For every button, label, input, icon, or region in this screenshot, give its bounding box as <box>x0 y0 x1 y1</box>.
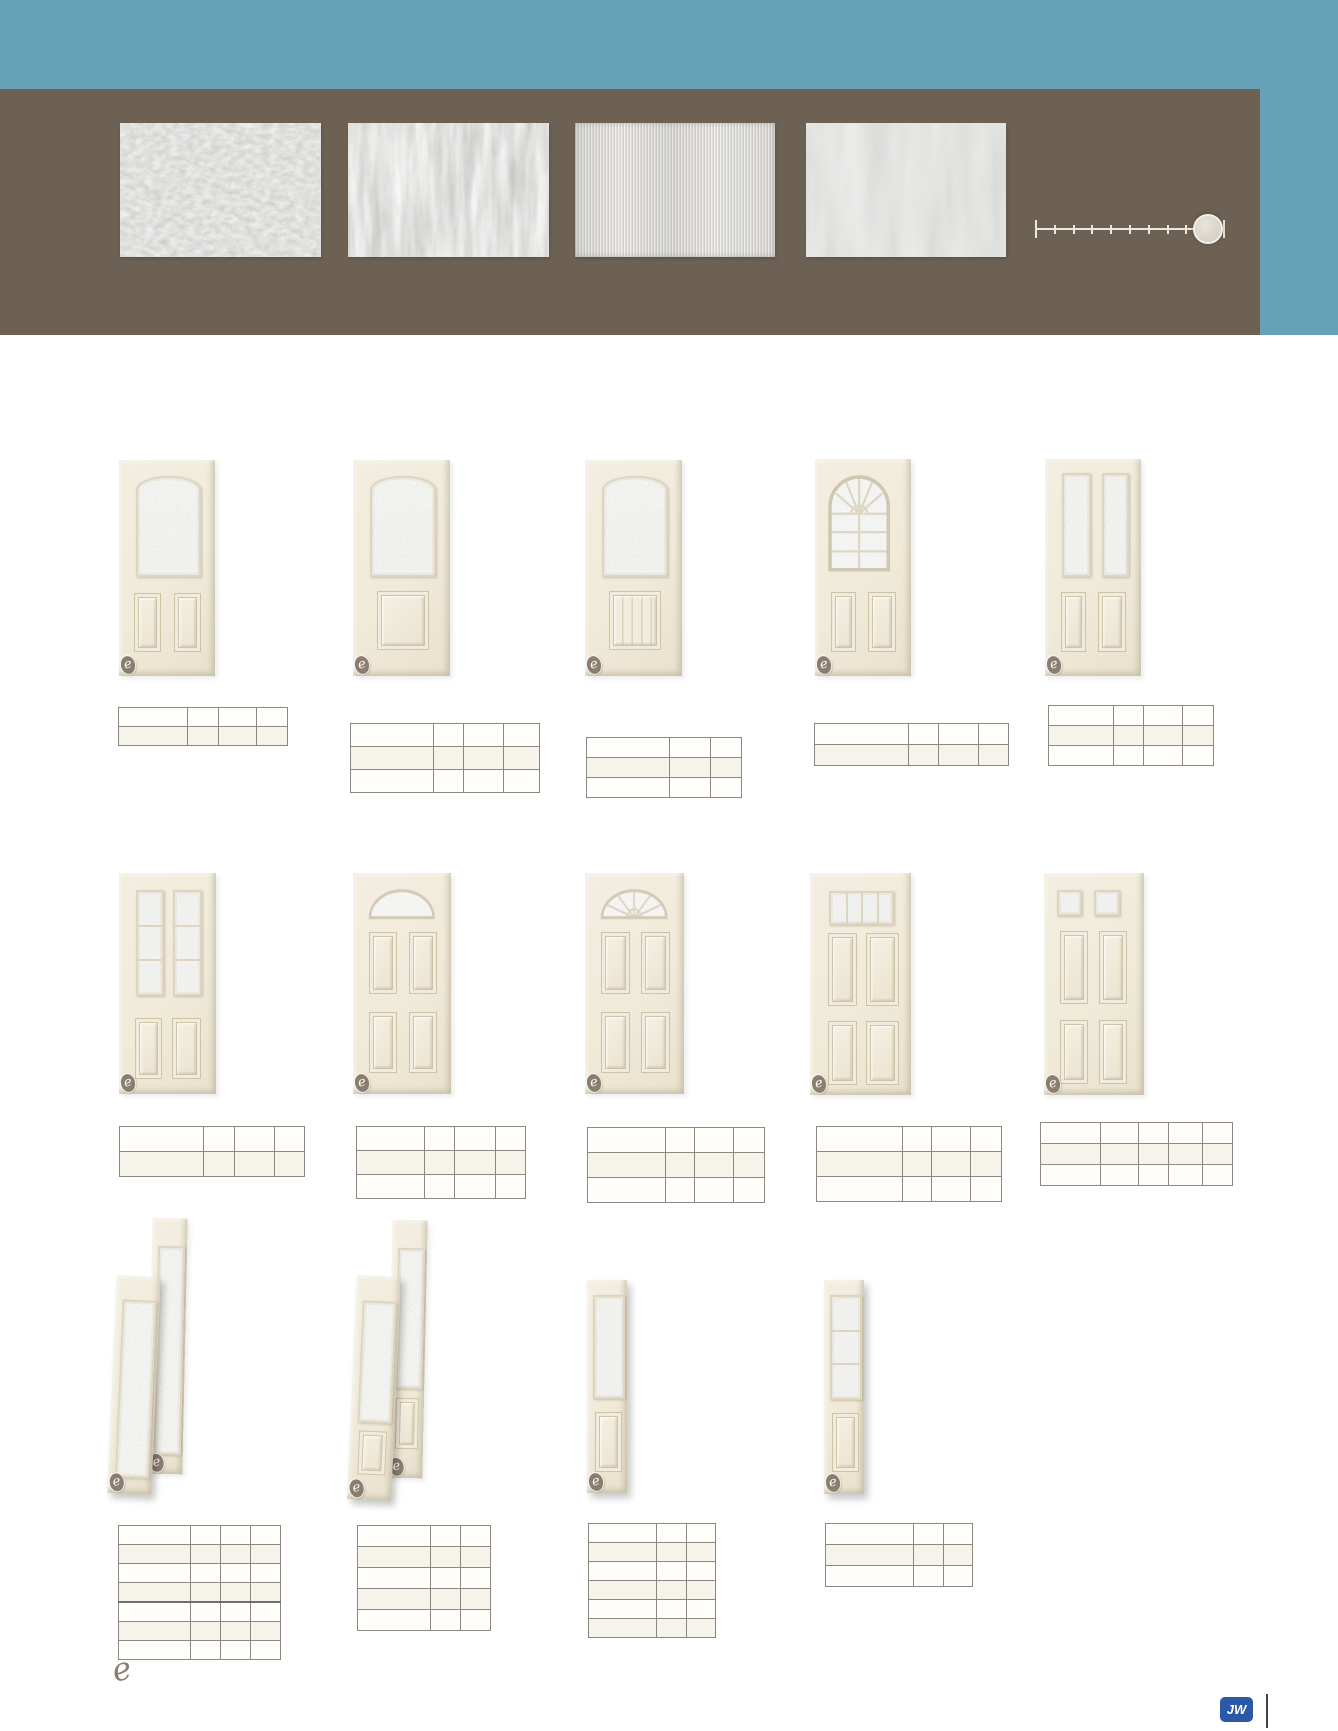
spec-cell <box>431 1526 461 1547</box>
spec-cell <box>464 747 504 770</box>
energy-e-badge: e <box>585 1073 602 1094</box>
scale-tick <box>1129 225 1131 234</box>
spec-cell <box>971 1152 1002 1177</box>
door-panel <box>641 932 670 995</box>
spec-cell <box>903 1127 932 1152</box>
door-panel <box>409 1012 437 1074</box>
door-glass <box>829 891 894 925</box>
spec-table <box>1040 1122 1233 1186</box>
door-glass <box>115 1299 157 1479</box>
glass-muntin <box>175 925 199 927</box>
door-half-lite-1panel: e <box>353 460 450 676</box>
jw-brand-logo: JW <box>1220 1697 1253 1722</box>
energy-e-badge: e <box>353 1073 370 1094</box>
footer-divider <box>1266 1694 1268 1728</box>
spec-cell <box>1203 1165 1233 1186</box>
spec-cell <box>1169 1123 1203 1144</box>
spec-cell <box>221 1583 251 1603</box>
spec-cell <box>589 1619 657 1638</box>
spec-cell <box>275 1127 305 1152</box>
spec-cell <box>687 1543 716 1562</box>
energy-e-badge: e <box>587 1472 604 1493</box>
spec-cell <box>235 1152 275 1177</box>
spec-table <box>588 1523 716 1638</box>
spec-table <box>118 707 288 746</box>
glass-muntin <box>861 893 863 923</box>
door-glass <box>358 1300 397 1424</box>
door-twin-square-4panel: e <box>1044 873 1144 1095</box>
spec-cell <box>434 724 464 747</box>
door-fan-4panel: e <box>353 873 451 1094</box>
spec-cell <box>461 1568 491 1589</box>
spec-cell <box>275 1152 305 1177</box>
door-glass <box>173 890 201 997</box>
energy-e-badge: e <box>810 1074 827 1095</box>
spec-cell <box>657 1619 687 1638</box>
spec-cell <box>504 770 540 793</box>
spec-cell <box>944 1566 973 1587</box>
spec-cell <box>1041 1165 1101 1186</box>
spec-cell <box>687 1524 716 1543</box>
spec-cell <box>434 770 464 793</box>
spec-cell <box>191 1602 221 1622</box>
door-glass <box>602 476 667 577</box>
spec-cell <box>1041 1144 1101 1165</box>
door-panel <box>377 591 429 650</box>
door-panel <box>1098 592 1127 652</box>
spec-cell <box>944 1545 973 1566</box>
fan-window <box>367 887 437 920</box>
door-panel <box>174 593 201 652</box>
spec-cell <box>932 1152 971 1177</box>
door-glass <box>136 476 200 577</box>
spec-cell <box>1041 1123 1101 1144</box>
door-arch-grille-2panel: e <box>815 459 911 676</box>
spec-cell <box>914 1566 944 1587</box>
spec-cell <box>826 1566 914 1587</box>
spec-cell <box>971 1127 1002 1152</box>
spec-cell <box>826 1524 914 1545</box>
glass-muntin <box>832 1363 860 1365</box>
spec-cell <box>589 1543 657 1562</box>
door-panel <box>369 932 397 995</box>
glass-muntin <box>138 925 161 927</box>
spec-cell <box>589 1581 657 1600</box>
spec-cell <box>1139 1144 1169 1165</box>
spec-cell <box>496 1175 526 1199</box>
scale-tick <box>1223 220 1225 238</box>
spec-cell <box>1183 746 1214 766</box>
spec-cell <box>817 1152 903 1177</box>
spec-table <box>356 1126 526 1199</box>
spec-cell <box>1139 1123 1169 1144</box>
spec-table <box>814 723 1009 766</box>
spec-cell <box>119 727 188 746</box>
spec-cell <box>1139 1165 1169 1186</box>
spec-cell <box>357 1151 425 1175</box>
energy-e-badge: e <box>824 1473 841 1494</box>
spec-cell <box>587 738 670 758</box>
spec-cell <box>657 1524 687 1543</box>
crinkle-glass-swatch <box>120 123 321 257</box>
spec-cell <box>119 1602 191 1622</box>
spec-cell <box>204 1152 235 1177</box>
spec-cell <box>251 1583 281 1603</box>
spec-cell <box>1203 1144 1233 1165</box>
spec-cell <box>1114 726 1144 746</box>
door-glass <box>395 1248 426 1389</box>
spec-cell <box>666 1128 695 1153</box>
door-glass <box>593 1295 625 1399</box>
spec-cell <box>461 1610 491 1631</box>
door-glass <box>136 890 163 997</box>
sunburst-fan-window <box>599 887 669 920</box>
spec-cell <box>119 1526 191 1545</box>
spec-cell <box>119 1583 191 1603</box>
scale-tick <box>1054 225 1056 234</box>
spec-cell <box>687 1581 716 1600</box>
spec-cell <box>815 724 909 745</box>
spec-cell <box>461 1526 491 1547</box>
privacy-scale <box>1036 213 1224 245</box>
door-panel <box>866 933 899 1006</box>
energy-e-badge: e <box>353 655 370 676</box>
spec-cell <box>191 1641 221 1660</box>
spec-cell <box>119 1641 191 1660</box>
door-glass <box>1102 473 1129 577</box>
spec-cell <box>496 1151 526 1175</box>
door-glass <box>1062 473 1091 577</box>
spec-cell <box>1101 1165 1139 1186</box>
door-panel <box>831 592 857 652</box>
glass-muntin <box>175 959 199 961</box>
spec-cell <box>666 1178 695 1203</box>
spec-cell <box>358 1526 431 1547</box>
spec-cell <box>734 1153 765 1178</box>
door-panel <box>832 1413 860 1473</box>
spec-cell <box>257 708 288 727</box>
sidelite-half-lite-panel: e <box>587 1280 627 1493</box>
spec-table <box>825 1523 973 1587</box>
door-half-lite-2panel: e <box>119 460 215 676</box>
spec-cell <box>351 770 434 793</box>
spec-cell <box>817 1127 903 1152</box>
spec-cell <box>734 1178 765 1203</box>
energy-e-badge: e <box>348 1478 365 1498</box>
energy-e-badge: e <box>1045 655 1062 676</box>
spec-cell <box>711 758 742 778</box>
spec-table <box>357 1525 491 1631</box>
spec-cell <box>944 1524 973 1545</box>
spec-cell <box>351 724 434 747</box>
spec-cell <box>461 1589 491 1610</box>
door-panel <box>1061 592 1087 652</box>
spec-cell <box>1114 706 1144 726</box>
spec-cell <box>431 1568 461 1589</box>
energy-e-badge: e <box>119 655 136 676</box>
spec-table <box>816 1126 1002 1202</box>
spec-cell <box>939 745 979 766</box>
spec-cell <box>657 1562 687 1581</box>
sidelite-lite-3seg-panel: e <box>824 1280 864 1494</box>
spec-cell <box>357 1175 425 1199</box>
spec-cell <box>657 1581 687 1600</box>
spec-cell <box>1203 1123 1233 1144</box>
spec-cell <box>711 778 742 798</box>
spec-cell <box>251 1526 281 1545</box>
door-glass <box>1057 890 1082 916</box>
spec-cell <box>431 1610 461 1631</box>
spec-cell <box>932 1177 971 1202</box>
spec-cell <box>588 1128 666 1153</box>
spec-cell <box>979 724 1009 745</box>
door-panel <box>641 1012 670 1074</box>
spec-cell <box>191 1622 221 1641</box>
spec-cell <box>666 1153 695 1178</box>
spec-cell <box>191 1545 221 1564</box>
door-panel <box>866 1021 899 1085</box>
spec-cell <box>357 1127 425 1151</box>
spec-cell <box>670 738 711 758</box>
spec-cell <box>670 778 711 798</box>
spec-cell <box>657 1600 687 1619</box>
door-panel <box>1099 931 1127 1004</box>
spec-cell <box>589 1524 657 1543</box>
spec-cell <box>120 1127 204 1152</box>
catalog-page: eee eee e eeeeeeeee <box>0 0 1338 1731</box>
spec-cell <box>235 1127 275 1152</box>
spec-cell <box>695 1153 734 1178</box>
spec-cell <box>358 1547 431 1568</box>
spec-table <box>118 1525 281 1660</box>
spec-cell <box>431 1547 461 1568</box>
spec-cell <box>257 727 288 746</box>
spec-cell <box>914 1524 944 1545</box>
spec-cell <box>1049 726 1114 746</box>
door-strip-lite-4panel: e <box>810 873 911 1095</box>
door-glass <box>830 1295 862 1400</box>
spec-cell <box>1169 1165 1203 1186</box>
spec-cell <box>1144 726 1183 746</box>
door-panel <box>601 1012 630 1074</box>
spec-table <box>1048 705 1214 766</box>
spec-table <box>586 737 742 798</box>
spec-cell <box>434 747 464 770</box>
spec-cell <box>914 1545 944 1566</box>
spec-cell <box>358 1589 431 1610</box>
spec-cell <box>221 1622 251 1641</box>
spec-cell <box>496 1127 526 1151</box>
door-panel <box>1099 1020 1127 1084</box>
glass-muntin <box>877 893 879 923</box>
spec-cell <box>979 745 1009 766</box>
wave-glass-swatch <box>806 123 1006 257</box>
spec-cell <box>815 745 909 766</box>
reed-glass-swatch <box>575 123 775 257</box>
spec-cell <box>464 724 504 747</box>
spec-cell <box>119 1545 191 1564</box>
spec-cell <box>120 1152 204 1177</box>
door-panel <box>395 1398 419 1449</box>
spec-cell <box>251 1545 281 1564</box>
door-fan-sunburst-4panel: e <box>585 873 684 1094</box>
spec-cell <box>826 1545 914 1566</box>
door-half-lite-plank: e <box>585 460 682 676</box>
spec-table <box>119 1126 305 1177</box>
spec-table <box>587 1127 765 1203</box>
spec-cell <box>188 727 219 746</box>
spec-cell <box>358 1568 431 1589</box>
spec-table <box>350 723 540 793</box>
spec-cell <box>939 724 979 745</box>
spec-cell <box>589 1600 657 1619</box>
spec-cell <box>221 1602 251 1622</box>
door-panel <box>409 932 437 995</box>
door-panel <box>1060 931 1088 1004</box>
door-panel <box>172 1018 200 1080</box>
glass-muntin <box>832 1330 860 1332</box>
spec-cell <box>734 1128 765 1153</box>
door-panel <box>595 1412 623 1472</box>
spec-cell <box>903 1152 932 1177</box>
spec-cell <box>351 747 434 770</box>
spec-cell <box>191 1564 221 1583</box>
spec-cell <box>221 1564 251 1583</box>
spec-cell <box>1101 1123 1139 1144</box>
spec-cell <box>589 1562 657 1581</box>
spec-cell <box>504 747 540 770</box>
spec-cell <box>1144 706 1183 726</box>
streak-glass-swatch <box>348 123 549 257</box>
spec-cell <box>455 1151 496 1175</box>
spec-cell <box>251 1602 281 1622</box>
spec-cell <box>455 1175 496 1199</box>
spec-cell <box>695 1178 734 1203</box>
spec-cell <box>1183 706 1214 726</box>
scale-tick <box>1073 225 1075 234</box>
scale-tick <box>1148 225 1150 234</box>
spec-cell <box>191 1526 221 1545</box>
spec-cell <box>191 1583 221 1603</box>
spec-cell <box>461 1547 491 1568</box>
scale-knob-icon <box>1193 214 1223 244</box>
glass-muntin <box>138 959 161 961</box>
spec-cell <box>425 1127 455 1151</box>
spec-cell <box>221 1526 251 1545</box>
spec-cell <box>687 1600 716 1619</box>
spec-cell <box>358 1610 431 1631</box>
spec-cell <box>204 1127 235 1152</box>
spec-cell <box>588 1178 666 1203</box>
spec-cell <box>1101 1144 1139 1165</box>
door-glass <box>370 476 435 577</box>
spec-cell <box>1049 746 1114 766</box>
spec-cell <box>464 770 504 793</box>
spec-cell <box>219 727 257 746</box>
door-panel <box>609 591 661 650</box>
spec-cell <box>670 758 711 778</box>
spec-cell <box>221 1545 251 1564</box>
spec-cell <box>687 1619 716 1638</box>
spec-cell <box>1144 746 1183 766</box>
spec-cell <box>251 1622 281 1641</box>
scale-tick <box>1167 225 1169 234</box>
scale-tick <box>1185 225 1187 234</box>
spec-cell <box>188 708 219 727</box>
energy-e-badge: e <box>585 655 602 676</box>
spec-cell <box>711 738 742 758</box>
energy-e-badge: e <box>815 655 832 676</box>
spec-cell <box>695 1128 734 1153</box>
door-twin-lite-3seg-2panel: e <box>119 873 216 1094</box>
door-panel <box>828 1021 857 1085</box>
spec-cell <box>1169 1144 1203 1165</box>
spec-cell <box>909 724 939 745</box>
spec-cell <box>932 1127 971 1152</box>
spec-cell <box>1049 706 1114 726</box>
spec-cell <box>221 1641 251 1660</box>
spec-cell <box>119 1564 191 1583</box>
door-panel <box>601 932 630 995</box>
spec-cell <box>425 1175 455 1199</box>
door-twin-lite-2panel: e <box>1045 459 1141 676</box>
arch-grille-window <box>827 473 891 573</box>
scale-tick <box>1110 225 1112 234</box>
spec-cell <box>903 1177 932 1202</box>
spec-cell <box>657 1543 687 1562</box>
spec-cell <box>817 1177 903 1202</box>
spec-cell <box>219 708 257 727</box>
spec-cell <box>909 745 939 766</box>
spec-cell <box>504 724 540 747</box>
spec-cell <box>119 1622 191 1641</box>
spec-cell <box>587 758 670 778</box>
door-panel <box>135 1018 162 1080</box>
door-panel <box>1060 1020 1088 1084</box>
spec-cell <box>119 708 188 727</box>
door-panel <box>357 1430 387 1476</box>
door-glass <box>1094 890 1120 916</box>
spec-cell <box>251 1641 281 1660</box>
scale-tick <box>1091 225 1093 234</box>
spec-cell <box>431 1589 461 1610</box>
door-panel <box>369 1012 397 1074</box>
door-panel <box>134 593 161 652</box>
glass-muntin <box>846 893 848 923</box>
spec-cell <box>425 1151 455 1175</box>
spec-cell <box>587 778 670 798</box>
spec-cell <box>455 1127 496 1151</box>
door-panel <box>868 592 897 652</box>
spec-cell <box>687 1562 716 1581</box>
spec-cell <box>588 1153 666 1178</box>
door-panel <box>828 933 857 1006</box>
spec-cell <box>1183 726 1214 746</box>
spec-cell <box>971 1177 1002 1202</box>
spec-cell <box>251 1564 281 1583</box>
spec-cell <box>1114 746 1144 766</box>
scale-tick <box>1035 220 1037 238</box>
